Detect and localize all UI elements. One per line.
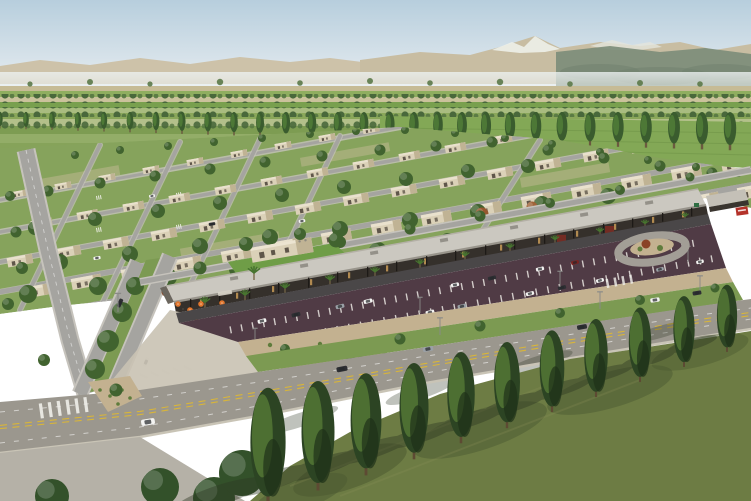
- monument-sign: [736, 206, 749, 216]
- orchard-row: [0, 94, 751, 103]
- tree: [5, 191, 15, 201]
- tree: [112, 302, 132, 322]
- tree: [615, 185, 625, 195]
- tree: [194, 262, 207, 275]
- umbrella: [175, 301, 181, 307]
- tree: [686, 173, 695, 182]
- cafe-table: [182, 308, 184, 310]
- red-shrub: [642, 240, 651, 249]
- tree: [475, 211, 486, 222]
- tree: [294, 228, 306, 240]
- tree: [38, 354, 50, 366]
- aerial-rendering: [0, 0, 751, 501]
- tree: [329, 233, 344, 248]
- tree: [239, 237, 253, 251]
- tree: [16, 262, 28, 274]
- tree: [97, 330, 119, 352]
- umbrella: [198, 301, 204, 307]
- green-sign: [694, 203, 699, 207]
- tree: [711, 284, 720, 293]
- orchard-row: [0, 107, 751, 117]
- tree: [11, 227, 22, 238]
- tree: [555, 308, 565, 318]
- tree: [395, 334, 406, 345]
- shrub: [657, 245, 663, 251]
- tree: [110, 384, 123, 397]
- tree: [545, 198, 555, 208]
- tree: [2, 298, 14, 310]
- shrub: [638, 247, 643, 252]
- tree: [405, 224, 416, 235]
- tree: [85, 359, 105, 379]
- tree: [475, 321, 486, 332]
- tree: [635, 295, 645, 305]
- screenshot: Aerial rendering of a master-planned des…: [0, 0, 751, 501]
